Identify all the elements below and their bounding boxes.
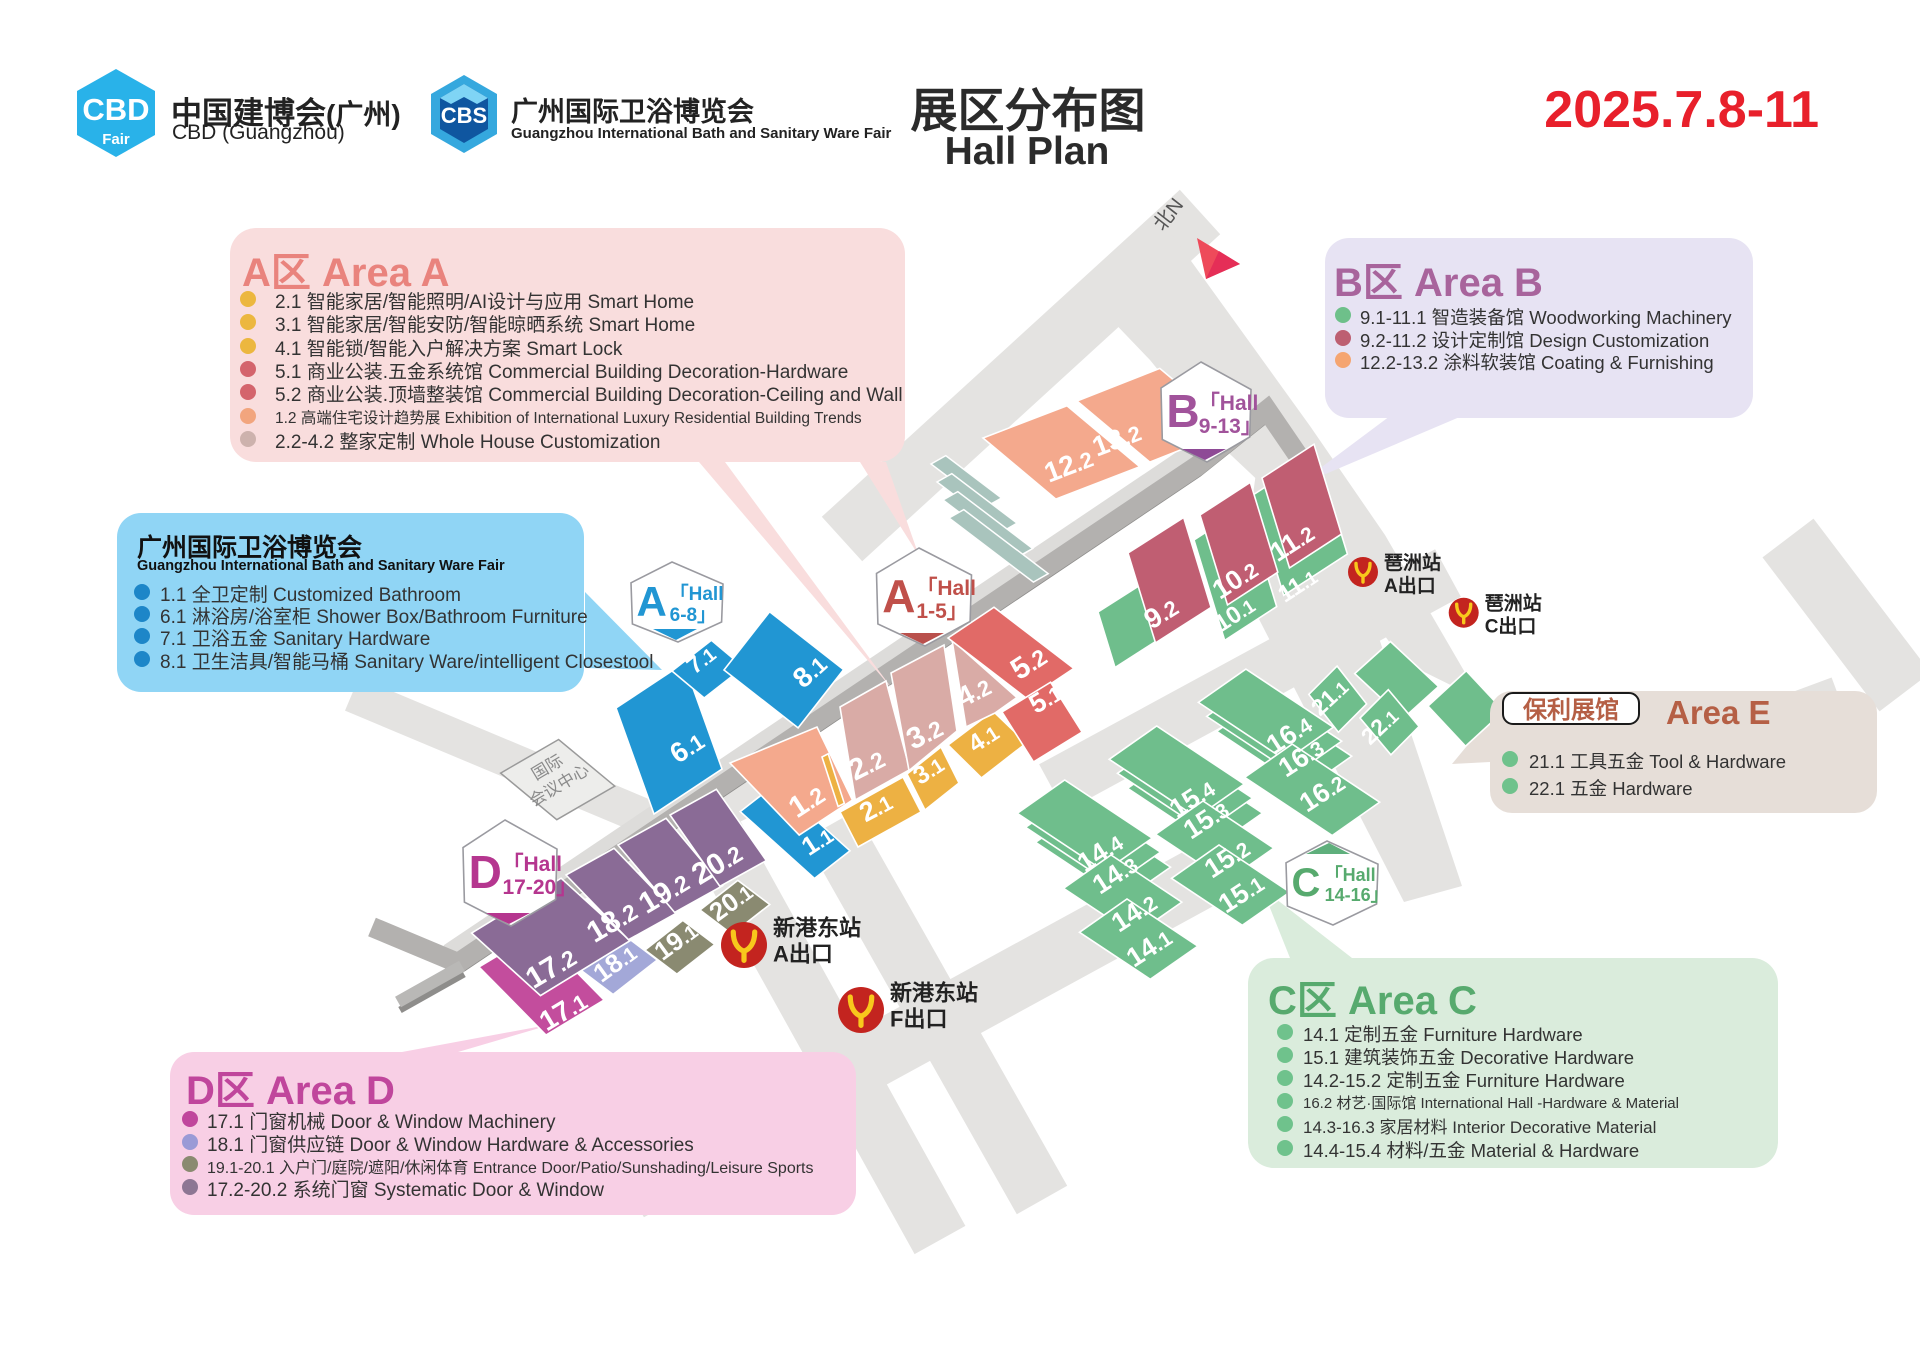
svg-text:「Hall: 「Hall xyxy=(1325,864,1376,885)
svg-text:C出口: C出口 xyxy=(1485,614,1537,637)
svg-text:13.2: 13.2 xyxy=(1088,416,1145,463)
svg-text:14-16」: 14-16」 xyxy=(1325,885,1389,905)
svg-text:新港东站: 新港东站 xyxy=(773,916,861,941)
svg-text:琶洲站: 琶洲站 xyxy=(1485,591,1542,614)
svg-text:1-5」: 1-5」 xyxy=(916,600,967,623)
svg-text:6-8」: 6-8」 xyxy=(670,605,716,626)
svg-text:A: A xyxy=(637,578,667,625)
svg-text:「Hall: 「Hall xyxy=(1199,392,1259,415)
svg-text:A出口: A出口 xyxy=(773,942,833,967)
svg-text:新港东站: 新港东站 xyxy=(890,981,978,1006)
svg-text:C: C xyxy=(1292,861,1321,905)
svg-text:17-20」: 17-20」 xyxy=(502,876,577,899)
svg-text:F出口: F出口 xyxy=(890,1007,947,1032)
svg-text:Fair: Fair xyxy=(102,131,130,148)
svg-text:CBS: CBS xyxy=(441,103,487,128)
svg-text:琶洲站: 琶洲站 xyxy=(1384,551,1441,574)
svg-text:D: D xyxy=(469,846,502,898)
svg-text:A: A xyxy=(882,570,915,622)
svg-text:9-13」: 9-13」 xyxy=(1199,415,1262,438)
svg-text:B: B xyxy=(1166,385,1199,437)
svg-text:「Hall: 「Hall xyxy=(502,853,562,876)
svg-text:「Hall: 「Hall xyxy=(916,577,976,600)
svg-text:「Hall: 「Hall xyxy=(670,582,724,605)
svg-text:A出口: A出口 xyxy=(1384,574,1436,597)
svg-text:CBD: CBD xyxy=(82,92,149,127)
